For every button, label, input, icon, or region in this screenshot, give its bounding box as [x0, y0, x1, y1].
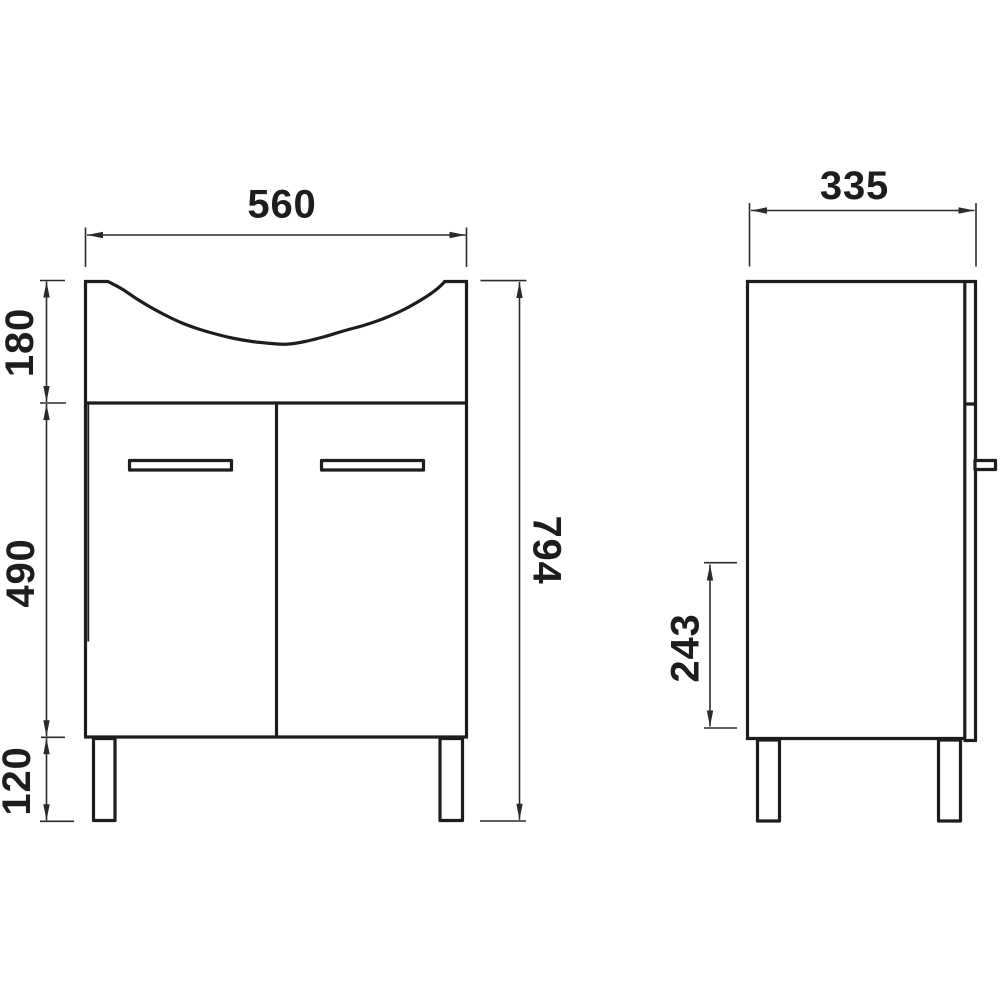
svg-text:794: 794	[525, 515, 569, 584]
svg-text:335: 335	[820, 164, 889, 208]
svg-text:243: 243	[664, 613, 708, 682]
svg-text:180: 180	[0, 308, 42, 377]
svg-text:560: 560	[247, 183, 316, 227]
svg-text:490: 490	[0, 538, 43, 607]
svg-text:120: 120	[0, 746, 39, 815]
